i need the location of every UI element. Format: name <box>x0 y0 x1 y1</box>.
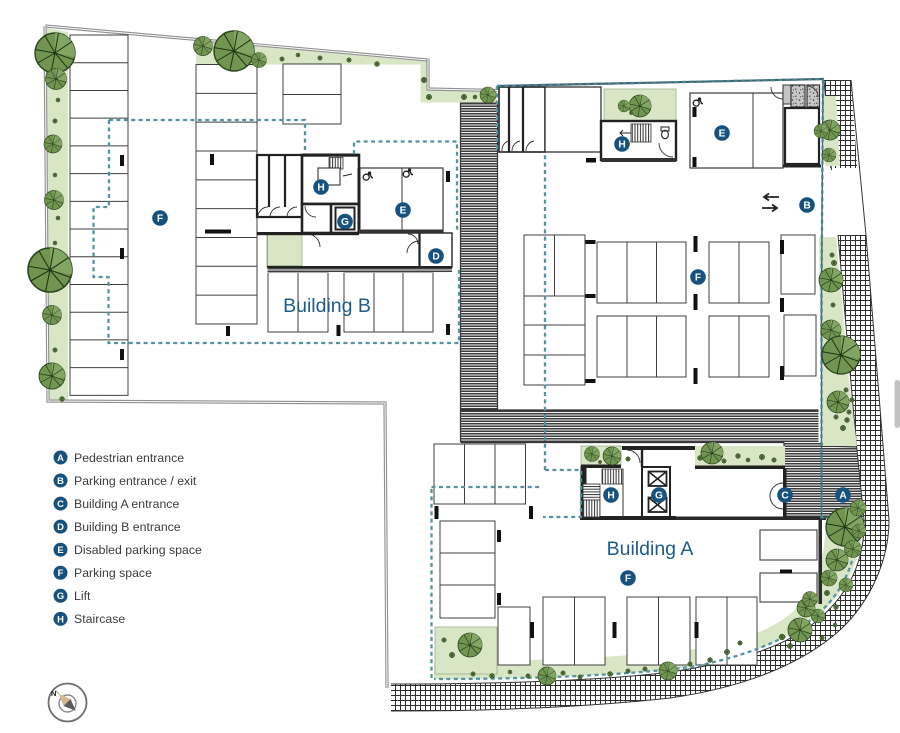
svg-text:D: D <box>57 521 64 532</box>
svg-text:H: H <box>618 140 625 151</box>
svg-text:F: F <box>625 574 631 585</box>
svg-text:H: H <box>57 613 64 624</box>
svg-text:Building B entrance: Building B entrance <box>74 520 181 534</box>
svg-text:Building A entrance: Building A entrance <box>74 497 179 511</box>
svg-text:B: B <box>57 475 64 486</box>
svg-text:G: G <box>341 217 349 228</box>
svg-text:F: F <box>58 567 64 578</box>
svg-text:F: F <box>695 273 701 284</box>
svg-text:F: F <box>157 214 163 225</box>
svg-text:Pedestrian entrance: Pedestrian entrance <box>74 451 184 465</box>
svg-text:N: N <box>51 689 56 698</box>
svg-text:Parking space: Parking space <box>74 566 152 580</box>
svg-text:Disabled parking space: Disabled parking space <box>74 543 202 557</box>
svg-text:Building B: Building B <box>283 295 371 317</box>
svg-text:Parking entrance / exit: Parking entrance / exit <box>74 474 197 488</box>
svg-text:Staircase: Staircase <box>74 612 125 626</box>
svg-text:Building A: Building A <box>607 538 694 560</box>
svg-text:E: E <box>719 129 726 140</box>
svg-text:C: C <box>57 498 64 509</box>
svg-text:G: G <box>655 491 663 502</box>
svg-text:Lift: Lift <box>74 589 91 603</box>
svg-text:G: G <box>57 590 64 601</box>
svg-text:C: C <box>781 491 789 502</box>
svg-text:H: H <box>317 183 324 194</box>
svg-text:A: A <box>57 452 64 463</box>
svg-text:H: H <box>607 491 614 502</box>
svg-text:A: A <box>839 491 847 502</box>
svg-text:E: E <box>57 544 63 555</box>
svg-text:E: E <box>400 206 407 217</box>
svg-text:B: B <box>803 201 810 212</box>
svg-text:D: D <box>432 252 439 263</box>
